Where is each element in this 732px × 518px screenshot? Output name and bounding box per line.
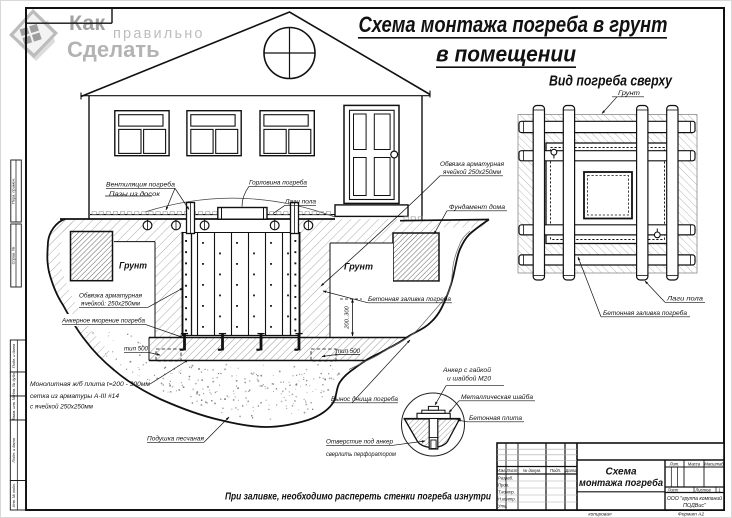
svg-text:Монолитная ж/б плита t=200 - 3: Монолитная ж/б плита t=200 - 300мм [30,380,151,388]
svg-text:Перв. примен.: Перв. примен. [10,178,15,204]
svg-text:тип 500: тип 500 [336,348,360,355]
svg-text:Грунт: Грунт [618,90,641,97]
svg-text:№ докум.: № докум. [523,468,541,473]
svg-text:Подушка песчаная: Подушка песчаная [147,435,205,443]
svg-text:монтажа погреба: монтажа погреба [579,477,663,489]
svg-text:Металлическая шайба: Металлическая шайба [461,394,534,401]
svg-text:Подп.: Подп. [550,468,561,473]
svg-text:1: 1 [718,487,720,492]
svg-text:Взам. инв. №: Взам. инв. № [11,395,16,420]
svg-text:Листов: Листов [694,487,711,492]
svg-text:в помещении: в помещении [436,42,577,67]
svg-text:Анкерное якорение погреба: Анкерное якорение погреба [61,317,145,325]
svg-text:сверлить перфоратором: сверлить перфоратором [326,451,397,458]
svg-text:Утв.: Утв. [498,504,508,509]
svg-text:Лаги пола: Лаги пола [284,199,316,206]
svg-text:Изм.: Изм. [497,468,506,473]
svg-text:Схема монтажа погреба в грунт: Схема монтажа погреба в грунт [359,12,668,37]
svg-text:Т.контр.: Т.контр. [498,490,515,495]
svg-text:Пазы из досок: Пазы из досок [109,190,161,198]
svg-text:с ячейкой 250х250мм: с ячейкой 250х250мм [30,403,94,411]
svg-text:Грунт: Грунт [119,261,147,271]
svg-text:Фундамент дома: Фундамент дома [449,203,505,211]
svg-text:Лит.: Лит. [669,461,680,466]
svg-text:ячейкой 250х250мм: ячейкой 250х250мм [442,168,502,176]
svg-text:Вид погреба сверху: Вид погреба сверху [549,74,673,90]
svg-text:и шайбой М20: и шайбой М20 [447,376,492,383]
svg-text:Схема: Схема [605,467,636,478]
svg-text:Н.контр.: Н.контр. [498,497,516,502]
svg-text:Вентиляция погреба: Вентиляция погреба [106,181,175,189]
svg-text:Отверстие под анкер: Отверстие под анкер [326,439,394,446]
svg-text:Лист: Лист [667,487,679,492]
svg-text:Сделать: Сделать [67,37,160,62]
svg-text:Подп. и дата: Подп. и дата [11,437,16,462]
svg-text:Бетонная заливка погреба: Бетонная заливка погреба [368,295,451,303]
svg-text:ячейкой: 250х250мм: ячейкой: 250х250мм [80,300,141,308]
svg-text:Инв. № дубл.: Инв. № дубл. [11,372,16,396]
svg-text:Обвязка арматурная: Обвязка арматурная [79,292,143,300]
svg-text:Масштаб: Масштаб [704,461,724,466]
svg-text:Вынос днища погреба: Вынос днища погреба [331,395,398,403]
svg-text:200..300: 200..300 [345,305,351,329]
svg-text:Лаги пола: Лаги пола [666,296,704,303]
svg-text:Разраб.: Разраб. [498,476,513,481]
svg-text:Обвязка арматурная: Обвязка арматурная [440,160,505,168]
svg-text:При заливке, необходимо распер: При заливке, необходимо распереть стенки… [225,491,491,503]
svg-text:Пров.: Пров. [498,483,509,488]
svg-text:Бетонная заливка погреба: Бетонная заливка погреба [603,309,687,317]
svg-text:копировал: копировал [588,513,612,518]
svg-text:Горловина погреба: Горловина погреба [249,179,307,187]
svg-text:сетка из арматуры А-III #14: сетка из арматуры А-III #14 [30,393,119,400]
svg-text:Бетонная плита: Бетонная плита [469,415,523,422]
svg-text:тип 500: тип 500 [124,346,148,353]
svg-text:Анкер с гайкой: Анкер с гайкой [442,367,492,374]
svg-text:Грунт: Грунт [344,262,373,272]
svg-text:Формат А2: Формат А2 [678,512,705,518]
svg-text:ПОДВис": ПОДВис" [683,503,707,509]
svg-text:ООО "группа компаний: ООО "группа компаний [667,495,722,502]
svg-text:Дата: Дата [564,468,577,473]
svg-text:Подп. и дата: Подп. и дата [11,343,16,368]
svg-text:Лист: Лист [506,468,518,473]
svg-text:Масса: Масса [688,461,701,466]
svg-text:Инв. № подл.: Инв. № подл. [11,483,16,507]
svg-text:Справ. №: Справ. № [10,246,15,264]
